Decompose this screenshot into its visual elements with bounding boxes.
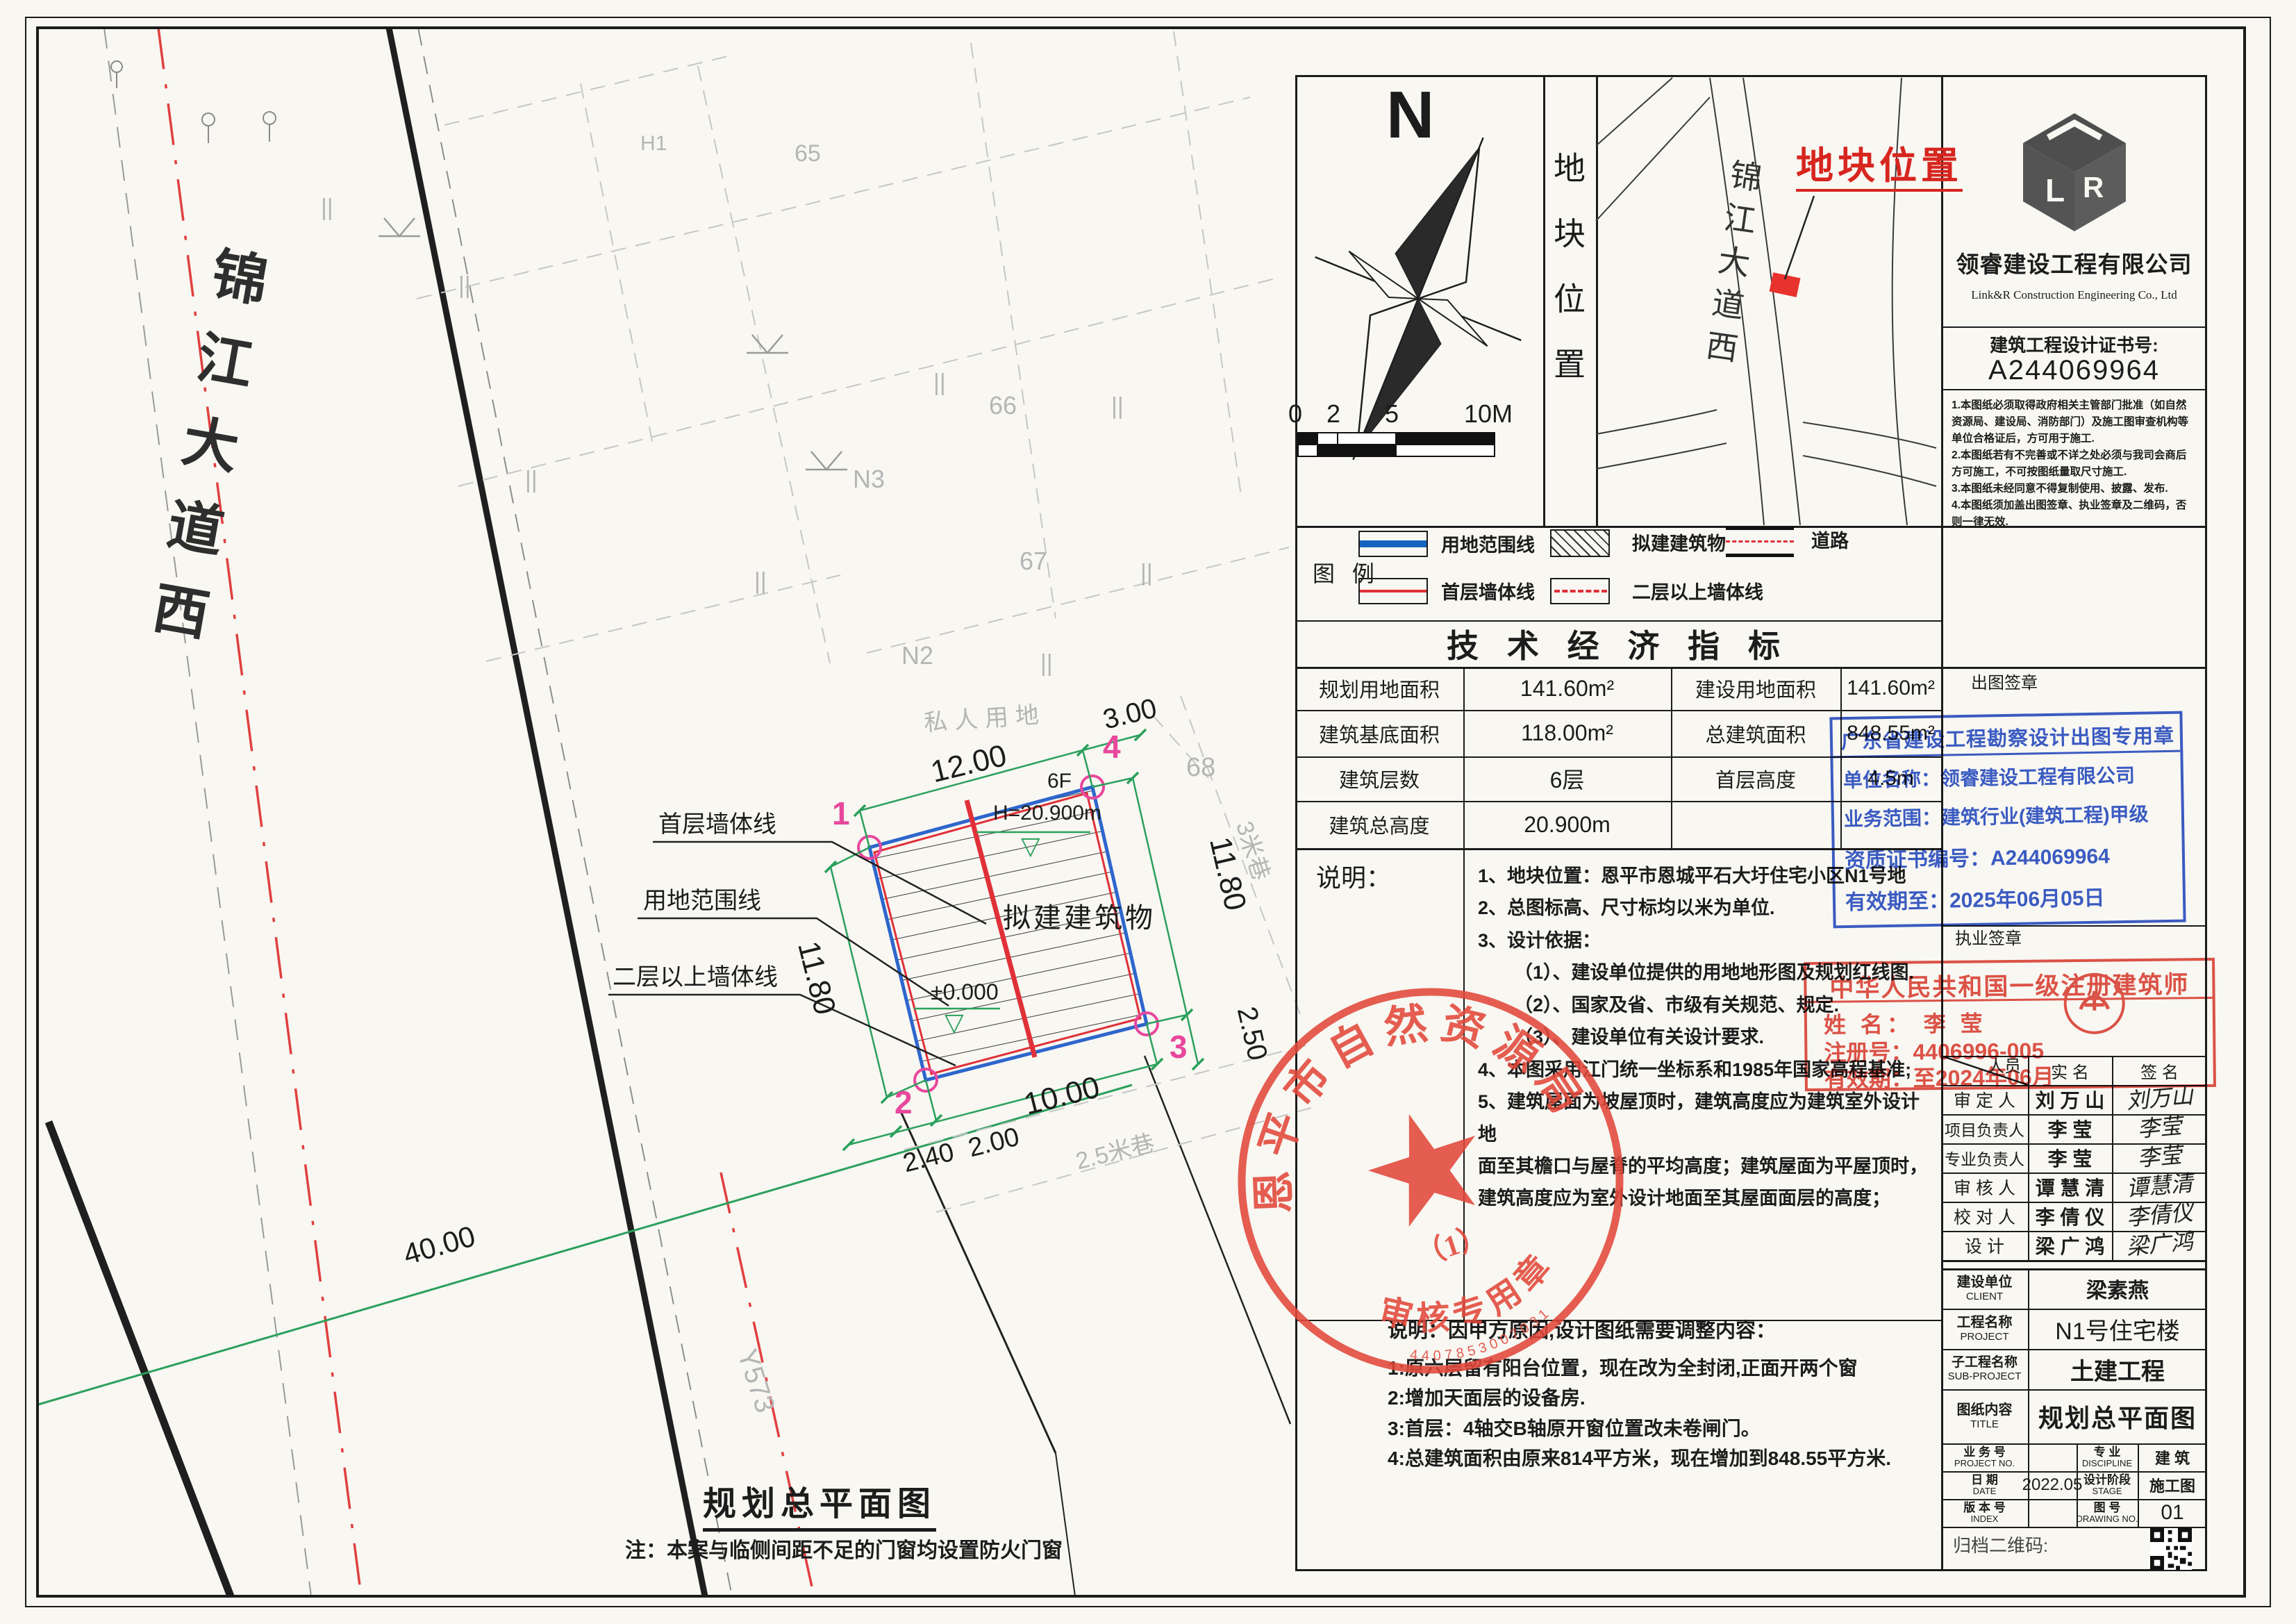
project-value: N1号住宅楼 <box>2028 1309 2207 1349</box>
blue-stamp-line2: 业务范围：建筑行业(建筑工程)甲级 <box>1844 799 2149 832</box>
ind-r2-l2: 总建筑面积 <box>1671 710 1840 756</box>
client-value: 梁素燕 <box>2028 1268 2207 1309</box>
content-label: 图纸内容 <box>1957 1402 2013 1418</box>
blue-seal-stamp: 广东省建设工程勘察设计出图专用章 单位名称：领睿建设工程有限公司 业务范围：建筑… <box>1829 711 2186 929</box>
cert-number: A244069964 <box>1945 356 2204 385</box>
legend-swatch-road <box>1726 527 1794 557</box>
legend-swatch-site-boundary <box>1358 531 1428 557</box>
dwgno-label: 图 号 <box>2094 1501 2121 1515</box>
index-label: 版 本 号 <box>1963 1501 2005 1515</box>
legend-label-3: 道路 <box>1811 532 1849 551</box>
sign-role-4: 审 核 人 <box>1941 1173 2028 1202</box>
company-note-3: 3.本图纸未经同意不得复制使用、披露、发布. <box>1952 481 2196 497</box>
company-name: 领睿建设工程有限公司 <box>1945 245 2204 281</box>
subproject-label: 子工程名称 <box>1952 1355 2018 1370</box>
map-site-location-label: 地块位置 <box>1796 147 1963 192</box>
stage-label-en: STAGE <box>2092 1486 2122 1497</box>
sign-role-1: 审 定 人 <box>1941 1085 2028 1114</box>
ind-r1-l1: 规划用地面积 <box>1295 667 1463 710</box>
adjust-line: 3:首层：4轴交B轴原开窗位置改未卷闸门。 <box>1388 1414 1936 1443</box>
discipline-value: 建 筑 <box>2138 1443 2207 1471</box>
sign-name-6: 梁 广 鸿 <box>2028 1231 2112 1260</box>
project-label-en: PROJECT <box>1960 1331 2008 1343</box>
ind-r4-l1: 建筑总高度 <box>1295 801 1463 848</box>
company-note-1: 1.本图纸必须取得政府相关主管部门批准（如自然资源局、建设局、消防部门）及施工图… <box>1952 397 2196 447</box>
legend-label-5: 二层以上墙体线 <box>1632 583 1763 602</box>
marker-leader <box>1785 196 1814 279</box>
sign-role-5: 校 对 人 <box>1941 1202 2028 1231</box>
blue-stamp-line4: 有效期至：2025年06月05日 <box>1845 881 2105 916</box>
cert-label: 建筑工程设计证书号: <box>1945 332 2204 356</box>
project-label: 工程名称 <box>1957 1315 2013 1331</box>
legend-label-1: 用地范围线 <box>1441 536 1535 555</box>
ind-r2-v1: 118.00m² <box>1463 710 1671 756</box>
stage-label: 设计阶段 <box>2083 1473 2131 1487</box>
drawing-sheet: 锦江大道西 H1 65 N3 66 67 N2 68 私人用地 3米巷 2.5米… <box>0 0 2296 1624</box>
sign-corner-label: 人员 <box>1988 1059 2021 1075</box>
government-review-seal: 恩平市自然资源局 审核专用章 4407853007031 （1） <box>1229 976 1632 1386</box>
legend-swatch-first-floor-wall <box>1358 578 1428 604</box>
company-note-4: 4.本图纸须加盖出图签章、执业签章及二维码，否则一律无效. <box>1952 497 2196 531</box>
sign-role-3: 专业负责人 <box>1941 1143 2028 1173</box>
discipline-label-en: DISCIPLINE <box>2082 1459 2132 1469</box>
svg-text:L: L <box>2045 172 2065 208</box>
sign-name-5: 李 倩 仪 <box>2028 1202 2112 1231</box>
index-label-en: INDEX <box>1971 1514 1999 1525</box>
legend-swatch-proposed-building <box>1550 529 1610 557</box>
content-label-en: TITLE <box>1970 1418 1999 1430</box>
content-value: 规划总平面图 <box>2028 1389 2207 1443</box>
discipline-label: 专 业 <box>2094 1445 2121 1459</box>
legend-label-4: 首层墙体线 <box>1441 583 1535 602</box>
note-line: 3、设计依据： <box>1478 925 1936 956</box>
ind-r2-l1: 建筑基底面积 <box>1295 710 1463 756</box>
ind-r3-v1: 6层 <box>1463 756 1671 801</box>
ind-r3-l1: 建筑层数 <box>1295 756 1463 801</box>
blue-stamp-line3: 资质证书编号：A244069964 <box>1845 838 2111 874</box>
architect-emblem <box>2062 971 2127 1036</box>
blue-stamp-title: 广东省建设工程勘察设计出图专用章 <box>1834 720 2182 755</box>
projectno-label-en: PROJECT NO. <box>1954 1459 2015 1469</box>
legend-swatch-upper-wall <box>1550 578 1610 604</box>
notes-label: 说明： <box>1316 865 1391 890</box>
sign-col-name: 实 名 <box>2028 1056 2112 1085</box>
site-marker <box>1770 272 1801 297</box>
sign-name-3: 李 莹 <box>2028 1143 2112 1173</box>
ind-r1-v2: 141.60m² <box>1840 667 1941 710</box>
adjust-line: 2:增加天面层的设备房. <box>1388 1383 1936 1413</box>
dwgno-label-en: DRAWING NO. <box>2076 1514 2138 1525</box>
date-value: 2022.05 <box>2028 1471 2077 1499</box>
legend-label-2: 拟建建筑物 <box>1632 535 1726 554</box>
qr-label: 归档二维码: <box>1953 1536 2048 1555</box>
indicators-title: 技 术 经 济 指 标 <box>1295 622 1941 665</box>
dwgno-value: 01 <box>2138 1499 2207 1527</box>
subproject-label-en: SUB-PROJECT <box>1948 1370 2022 1382</box>
ind-r1-v1: 141.60m² <box>1463 667 1671 710</box>
company-name-en: Link&R Construction Engineering Co., Ltd <box>1945 283 2204 307</box>
svg-text:R: R <box>2083 171 2104 204</box>
sign-name-2: 李 莹 <box>2028 1114 2112 1143</box>
date-label: 日 期 <box>1971 1473 1998 1487</box>
sign-role-2: 项目负责人 <box>1941 1114 2028 1143</box>
sign-name-4: 谭 慧 清 <box>2028 1173 2112 1202</box>
projectno-value <box>2028 1443 2077 1471</box>
adjust-line: 4:总建筑面积由原来814平方米，现在增加到848.55平方米. <box>1388 1443 1936 1473</box>
seal-star <box>1356 1097 1496 1234</box>
ind-r3-l2: 首层高度 <box>1671 756 1840 801</box>
sign-role-6: 设 计 <box>1941 1231 2028 1260</box>
stage-value: 施工图 <box>2138 1471 2207 1499</box>
ind-r4-v1: 20.900m <box>1463 801 1671 848</box>
ind-r1-l2: 建设用地面积 <box>1671 667 1840 710</box>
zhiye-stamp-label: 执业签章 <box>1955 931 2022 947</box>
sign-name-1: 刘 万 山 <box>2028 1085 2112 1114</box>
ind-r4-l2 <box>1671 801 1840 848</box>
subproject-value: 土建工程 <box>2028 1349 2207 1389</box>
projectno-label: 业 务 号 <box>1963 1445 2005 1459</box>
date-label-en: DATE <box>1973 1486 1997 1497</box>
seal-sub: （1） <box>1412 1219 1491 1273</box>
blue-stamp-line1: 单位名称：领睿建设工程有限公司 <box>1843 761 2136 793</box>
company-note-2: 2.本图纸若有不完善或不详之处必须与我司会商后方可施工，不可按图纸量取尺寸施工. <box>1952 447 2196 481</box>
company-notes: 1.本图纸必须取得政府相关主管部门批准（如自然资源局、建设局、消防部门）及施工图… <box>1952 397 2196 531</box>
chutu-stamp-label: 出图签章 <box>1971 675 2038 692</box>
company-logo: L R <box>2022 110 2127 235</box>
index-value <box>2028 1499 2077 1527</box>
client-label: 建设单位 <box>1957 1275 2013 1291</box>
archive-qr-code <box>2150 1528 2192 1570</box>
client-label-en: CLIENT <box>1966 1291 2003 1302</box>
